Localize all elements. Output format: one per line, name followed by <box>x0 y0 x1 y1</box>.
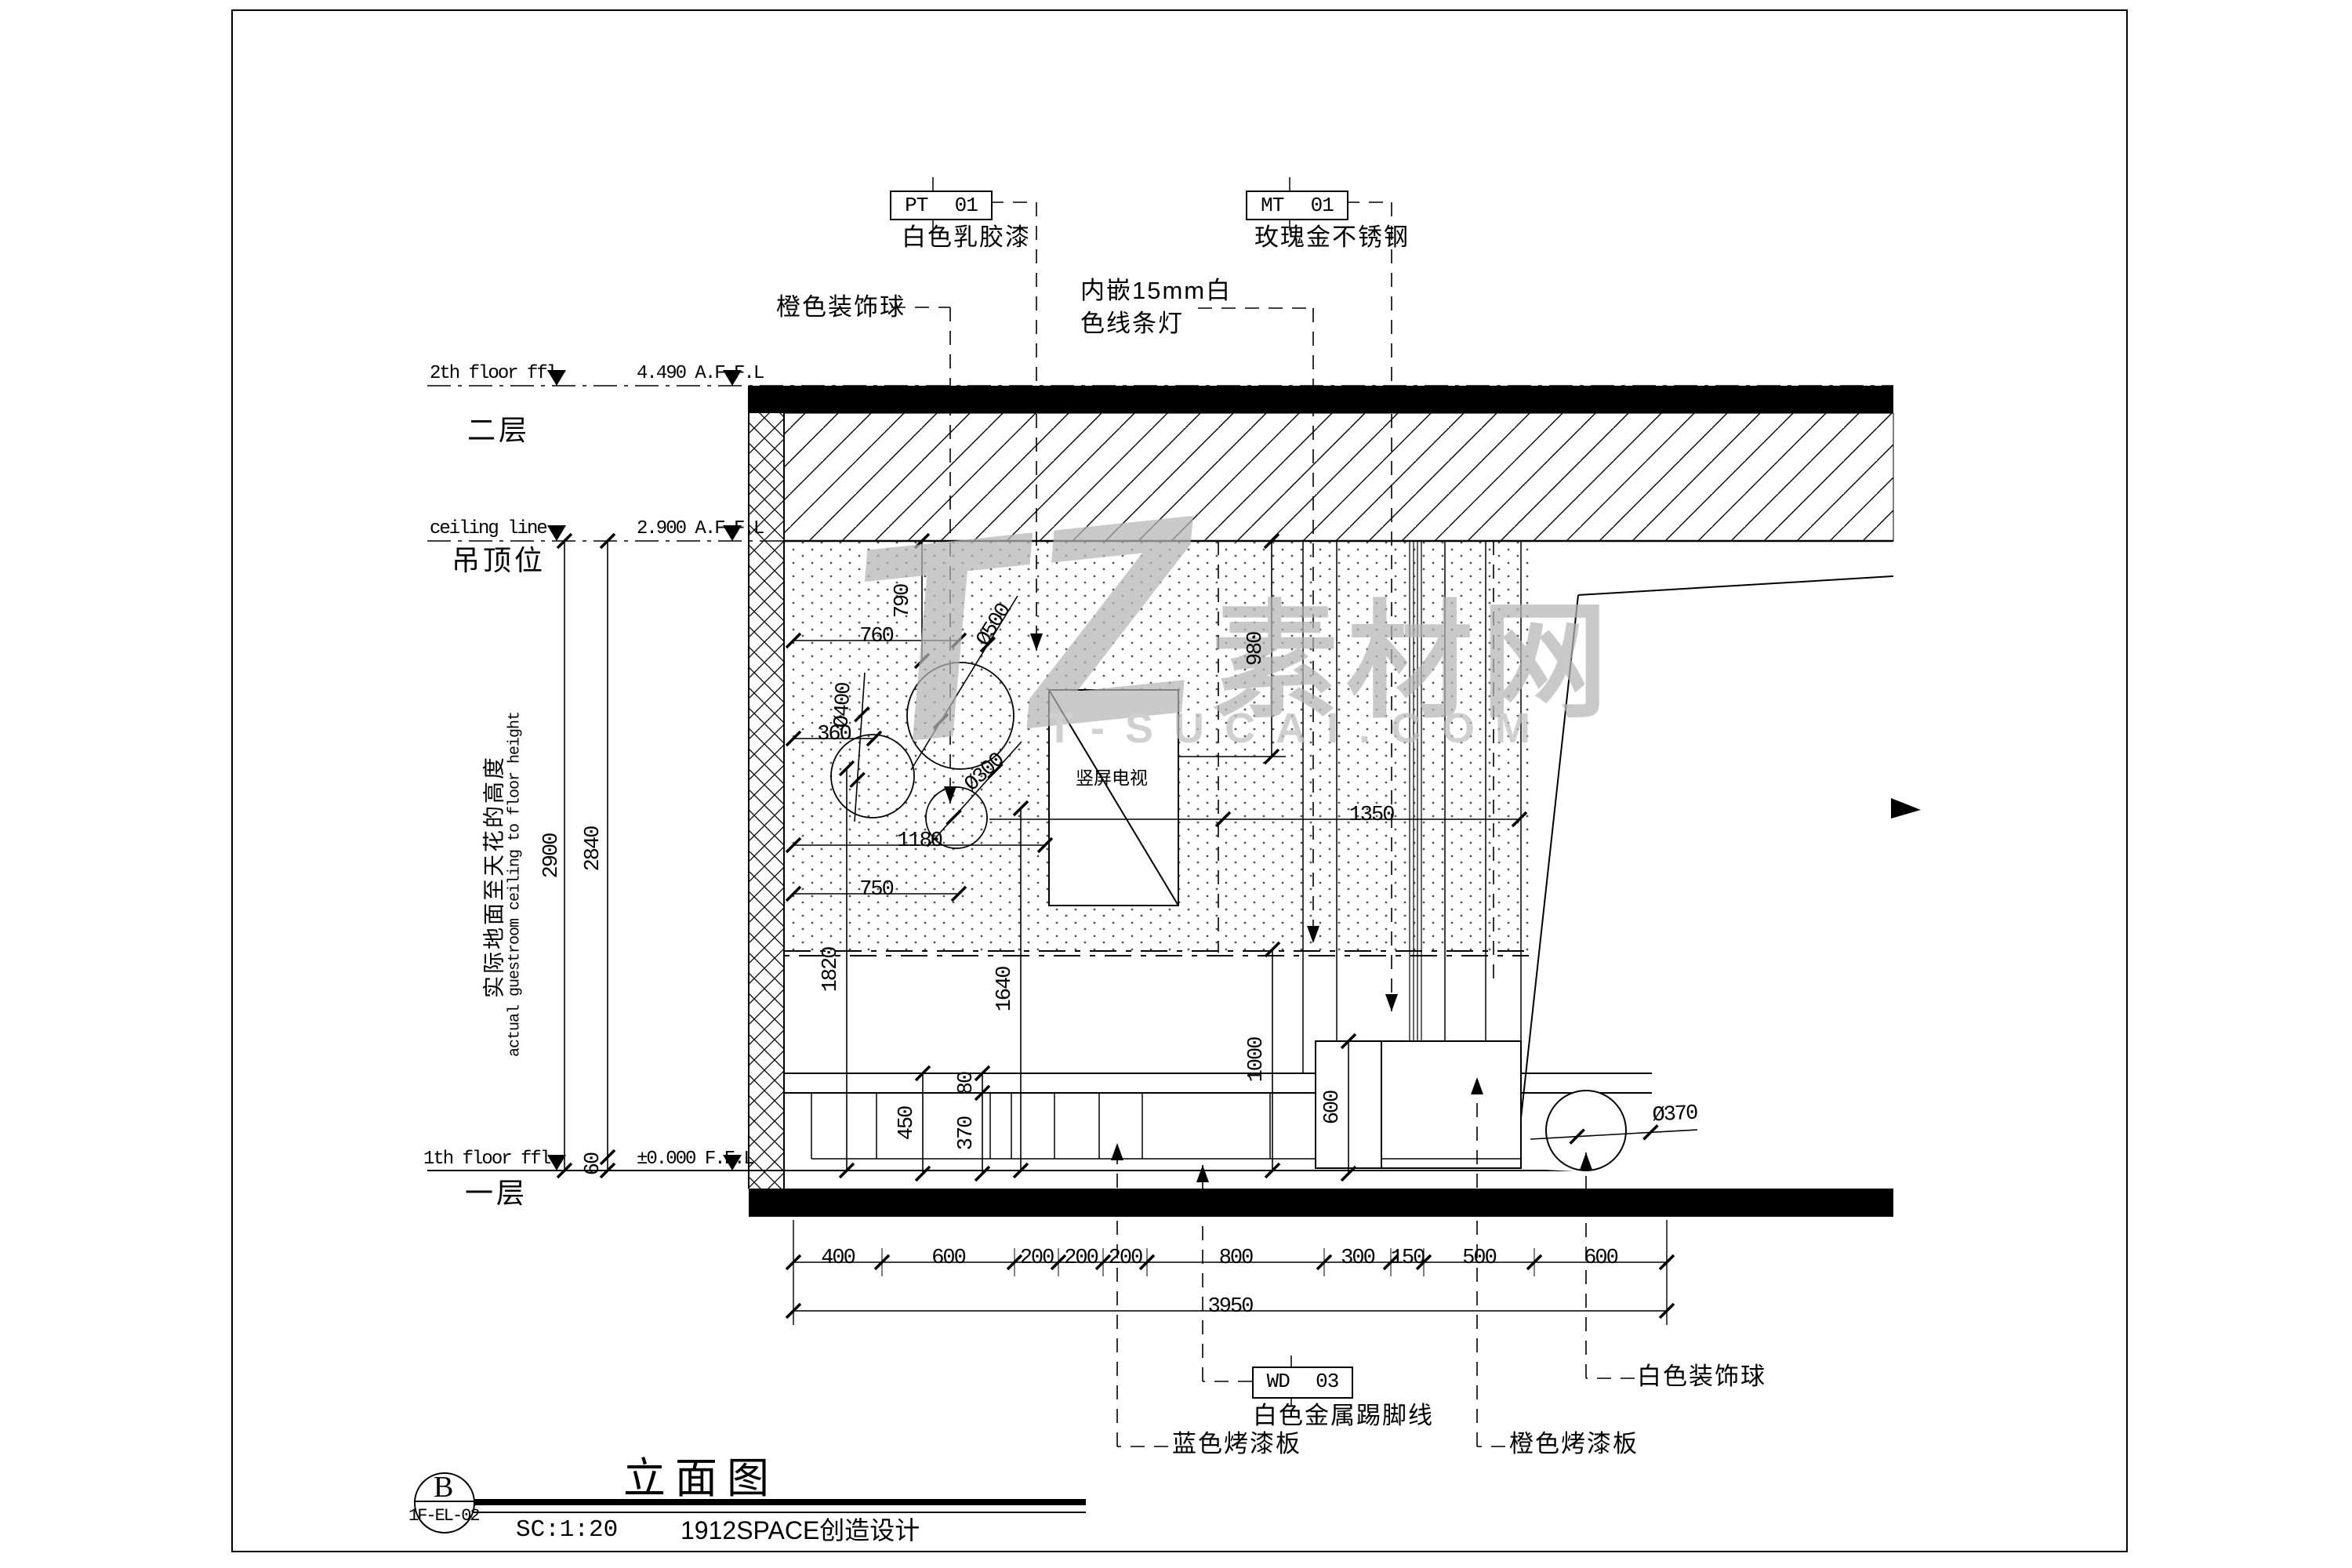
title-bubble-code: 1F-EL-02 <box>408 1507 479 1525</box>
dim-label: 600 <box>1321 1091 1345 1124</box>
dim-label: 500 <box>1462 1247 1496 1270</box>
led-label-line2: 色线条灯 <box>1080 311 1184 337</box>
dim-label: 200 <box>1064 1247 1098 1270</box>
side-note-cn: 实际地面至天花的高度 <box>482 755 505 998</box>
level-triangle-icons <box>547 370 742 1171</box>
tag-pt01-num: 01 <box>942 192 992 219</box>
level-1f-cn: 一层 <box>465 1178 528 1208</box>
tag-mt01-code: MT <box>1247 192 1298 219</box>
dim-label: 60 <box>582 1152 605 1174</box>
tv <box>1049 690 1178 906</box>
level-2f-cn: 二层 <box>467 416 530 445</box>
leader-arrow-icon <box>1111 1143 1123 1160</box>
section-arrow-icon <box>1891 798 1921 818</box>
dim-label: 450 <box>895 1107 919 1141</box>
dim-label: 750 <box>859 878 893 902</box>
white-ball-label: 白色装饰球 <box>1637 1364 1766 1390</box>
cabinet-dividers <box>811 1093 1270 1159</box>
upper-slab <box>749 386 1893 413</box>
company-name: 1912SPACE创造设计 <box>681 1518 920 1544</box>
drawing-scale: SC:1:20 <box>516 1518 618 1544</box>
tag-pt01-desc: 白色乳胶漆 <box>902 225 1031 251</box>
dim-label: 200 <box>1020 1247 1054 1270</box>
tag-wd03-desc: 白色金属踢脚线 <box>1253 1403 1434 1429</box>
dim-label: Ø400 <box>831 683 857 728</box>
level-ceiling-elev: 2.900 A.F.F.L <box>637 519 763 539</box>
leader-arrow-icon <box>1385 994 1398 1011</box>
dim-label: 800 <box>1219 1247 1253 1270</box>
tag-mt01-desc: 玫瑰金不锈钢 <box>1254 225 1410 251</box>
drawing-sheet: TZ 素材网 T-SUCAI.COM PT 01 白色乳胶漆 MT 01 玫瑰金… <box>0 0 2352 1568</box>
dim-label: 1820 <box>819 947 843 992</box>
dim-label: 200 <box>1109 1247 1142 1270</box>
dim-label: 370 <box>955 1116 978 1150</box>
blue-panel-label: 蓝色烤漆板 <box>1172 1432 1301 1457</box>
dim-label: 790 <box>891 584 915 618</box>
tv-label: 竖屏电视 <box>1076 768 1148 787</box>
dim-label: 760 <box>859 625 893 648</box>
dim-label: 300 <box>1341 1247 1374 1270</box>
dim-label: 2840 <box>582 827 605 872</box>
led-label-line1: 内嵌15mm白 <box>1080 278 1232 304</box>
dim-label: 3950 <box>1208 1295 1253 1319</box>
tall-unit <box>1316 1041 1521 1168</box>
title-bar-thin <box>474 1512 1086 1513</box>
tag-wd03-code: WD <box>1254 1368 1303 1397</box>
tag-wd03: WD 03 <box>1252 1367 1353 1399</box>
lower-slab <box>749 1189 1893 1217</box>
tag-wd03-num: 03 <box>1303 1368 1352 1397</box>
level-1f-elev: ±0.000 F.F.L <box>637 1149 753 1169</box>
drawing-title: 立面图 <box>623 1457 779 1501</box>
side-note-en: actual guestroom ceiling to floor height <box>507 712 524 1057</box>
title-bubble-letter: B <box>434 1472 453 1504</box>
dim-label: 150 <box>1391 1247 1425 1270</box>
level-1f-name: 1th floor ffl <box>423 1149 550 1169</box>
leader-arrow-icon <box>1196 1165 1209 1182</box>
title-bar-thick <box>474 1499 1086 1505</box>
dim-label: 1180 <box>897 829 942 853</box>
dim-label: 1000 <box>1245 1038 1269 1083</box>
level-2f-elev: 4.490 A.F.F.L <box>637 364 763 383</box>
level-ceiling-cn: 吊顶位 <box>452 546 546 575</box>
dim-label: 1640 <box>993 967 1017 1012</box>
level-2f-name: 2th floor ffl <box>430 364 556 383</box>
dim-label: 80 <box>955 1072 978 1094</box>
dim-label: 2900 <box>540 833 564 878</box>
tag-pt01-code: PT <box>891 192 942 219</box>
dim-label: 1350 <box>1349 804 1394 827</box>
tag-mt01: MT 01 <box>1246 191 1348 220</box>
tag-mt01-num: 01 <box>1298 192 1348 219</box>
orange-panel-label: 橙色烤漆板 <box>1509 1432 1639 1457</box>
dim-label: 980 <box>1244 632 1268 666</box>
orange-ball-label: 橙色装饰球 <box>776 295 906 321</box>
dim-label: 600 <box>1584 1247 1617 1270</box>
dim-label: 600 <box>931 1247 965 1270</box>
tag-pt01: PT 01 <box>890 191 993 220</box>
dim-label: Ø370 <box>1652 1102 1697 1128</box>
level-ceiling-name: ceiling line <box>430 519 546 539</box>
dim-label: 400 <box>821 1247 855 1270</box>
cad-linework <box>0 0 2352 1568</box>
